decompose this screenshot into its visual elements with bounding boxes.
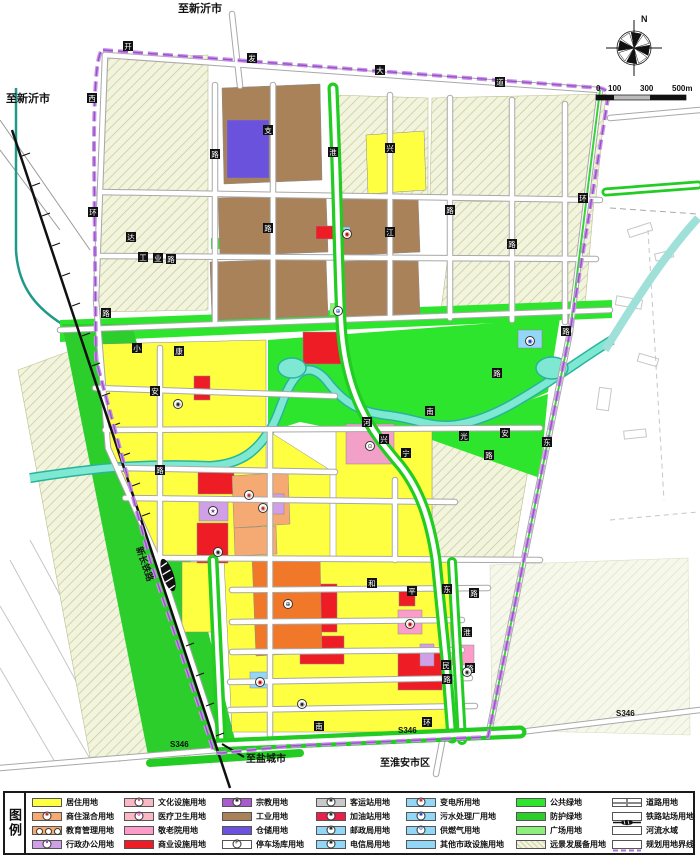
map-label: 至淮安市区: [380, 756, 430, 769]
legend-swatch-fill-symbol: ⊕: [124, 812, 154, 821]
legend-label: 铁路站场用地: [646, 811, 694, 822]
road-name-char: 路: [485, 450, 493, 460]
legend-entry: 敬老院用地: [124, 823, 222, 837]
facility-symbol-glyph: ◉: [299, 702, 304, 708]
legend-symbol: ◉: [233, 798, 242, 807]
road-name-char: 安: [501, 428, 509, 438]
scale-label: 100: [608, 84, 622, 93]
legend-label: 污水处理厂用地: [440, 811, 496, 822]
legend-symbol: ◉: [43, 812, 52, 821]
legend-label: 远景发展备用地: [550, 839, 606, 850]
legend-entry: 居住用地: [32, 795, 124, 809]
river-icon: [613, 833, 641, 835]
road-name-char: 路: [446, 205, 454, 215]
legend-symbol: ★: [43, 840, 52, 849]
road-name-char: 东: [443, 584, 451, 594]
legend-column: 道路用地铁路站场用地河流水域规划用地界线: [612, 795, 696, 851]
road-name-char: 达: [127, 232, 135, 242]
legend-symbol: ◉: [327, 826, 336, 835]
legend-panel: 图例 居住用地◉商住混合用地教育管理用地★行政办公用地★文化设施用地⊕医疗卫生用…: [3, 791, 695, 855]
legend-symbol: ◉: [417, 812, 426, 821]
dash-line-icon: [613, 847, 641, 854]
legend-swatch-fill-symbol: ◉: [316, 840, 346, 849]
legend-entry: ◉宗教用地: [222, 795, 316, 809]
road-name-char: 环: [89, 208, 97, 217]
legend-swatch-fill-symbol: P: [222, 840, 252, 849]
facility-symbol-glyph: ◉: [175, 402, 180, 408]
compass-north-label: N: [641, 14, 648, 24]
facility-symbol-glyph: ◉: [527, 339, 532, 345]
legend-swatch-fill-symbol: ⊙: [406, 826, 436, 835]
road-name-char: 路: [167, 254, 175, 264]
legend-swatch-fill-symbol: ◉: [406, 798, 436, 807]
legend-label: 变电所用地: [440, 797, 480, 808]
scale-label: 0: [596, 84, 601, 93]
legend-title: 图例: [5, 808, 24, 838]
legend-entry: 河流水域: [612, 823, 696, 837]
legend-entry: 其他市政设施用地: [406, 837, 516, 851]
legend-symbol: ◉: [417, 798, 426, 807]
legend-swatch-road-icon: [612, 798, 642, 807]
facility-symbol-glyph: ★: [210, 508, 215, 515]
legend-entry: ◉变电所用地: [406, 795, 516, 809]
legend-swatch-fill-symbol: ◉: [316, 826, 346, 835]
legend-swatch-fill: [124, 840, 154, 849]
legend-label: 防护绿地: [550, 811, 582, 822]
facility-symbol-glyph: ◉: [246, 493, 251, 499]
road-name-char: 工: [139, 253, 147, 262]
legend-label: 行政办公用地: [66, 839, 114, 850]
legend-entry: ★文化设施用地: [124, 795, 222, 809]
legend-swatch-fill-symbol: ◉: [406, 812, 436, 821]
map-label: S346: [398, 726, 417, 735]
road-name-char: 道: [496, 77, 504, 87]
legend-label: 加油站用地: [350, 811, 390, 822]
road-name-char: 宁: [402, 448, 410, 458]
road-name-char: 路: [156, 465, 164, 475]
road-name-char: 东: [543, 437, 551, 447]
rail-icon: [613, 819, 641, 826]
legend-entry: ◉污水处理厂用地: [406, 809, 516, 823]
road-name-char: 民: [442, 661, 450, 670]
facility-symbol-glyph: ⊕: [285, 602, 290, 608]
legend-grid: 居住用地◉商住混合用地教育管理用地★行政办公用地★文化设施用地⊕医疗卫生用地敬老…: [26, 793, 696, 853]
legend-entry: ◉加油站用地: [316, 809, 406, 823]
compass-rose: N: [606, 14, 662, 76]
legend-label: 道路用地: [646, 797, 678, 808]
legend-label: 其他市政设施用地: [440, 839, 504, 850]
road-name-char: 环: [423, 718, 431, 727]
legend-label: 河流水域: [646, 825, 678, 836]
legend-column: 公共绿地防护绿地广场用地远景发展备用地: [516, 795, 612, 851]
legend-column: ◉客运站用地◉加油站用地◉邮政局用地◉电信局用地: [316, 795, 406, 851]
road-name-char: 路: [264, 223, 272, 233]
legend-label: 广场用地: [550, 825, 582, 836]
road-name-char: 业: [154, 253, 162, 263]
facility-symbol-glyph: ◉: [260, 506, 265, 512]
road-name-char: 路: [443, 674, 451, 684]
road-icon-line: [626, 799, 628, 806]
legend-entry: ◉客运站用地: [316, 795, 406, 809]
facility-symbol-glyph: ⊕: [335, 309, 340, 315]
facility-symbol-glyph: ◉: [215, 550, 220, 556]
map-label: 至盐城市: [246, 752, 286, 765]
road-name-char: 支: [264, 125, 272, 135]
legend-column: ★文化设施用地⊕医疗卫生用地敬老院用地商业设施用地: [124, 795, 222, 851]
scale-bar: 0100300500m: [596, 84, 692, 100]
legend-swatch-fill-symbol: ◉: [316, 798, 346, 807]
legend-entry: ◉邮政局用地: [316, 823, 406, 837]
legend-entry: 公共绿地: [516, 795, 612, 809]
legend-swatch-fill-symbol: ★: [32, 840, 62, 849]
legend-swatch-fill: [516, 812, 546, 821]
legend-entry: 道路用地: [612, 795, 696, 809]
legend-swatch-fill-symbol: ★: [124, 798, 154, 807]
legend-label: 公共绿地: [550, 797, 582, 808]
legend-symbol: ◉: [327, 798, 336, 807]
planning-map: 开发大道西环路达工业路支路兴江路路路淮环路小康安路河兴光宁南安东路路和平东路民路…: [0, 0, 700, 790]
legend-entry: 规划用地界线: [612, 837, 696, 851]
legend-label: 商业设施用地: [158, 839, 206, 850]
legend-swatch-fill: [32, 798, 62, 807]
road-name-char: 路: [102, 308, 110, 318]
legend-swatch-fill: [124, 826, 154, 835]
road-name-char: 路: [470, 588, 478, 598]
legend-swatch-fill-symbol: ◉: [32, 812, 62, 821]
legend-entry: 广场用地: [516, 823, 612, 837]
map-label: S346: [170, 740, 189, 749]
map-label: 至新沂市: [6, 91, 50, 105]
road-name-char: 淮: [463, 627, 471, 637]
road-name-char: 河: [363, 418, 371, 427]
legend-entry: 工业用地: [222, 809, 316, 823]
road-name-char: 兴: [380, 435, 388, 444]
legend-swatch-fill: [516, 798, 546, 807]
map-label: S346: [616, 709, 635, 718]
legend-symbol: P: [233, 840, 242, 849]
road-name-char: 路: [562, 326, 570, 336]
legend-entry: ⊙供燃气用地: [406, 823, 516, 837]
road-name-char: 淮: [329, 147, 337, 157]
road-name-char: 兴: [386, 144, 394, 153]
legend-swatch-fill: [222, 812, 252, 821]
legend-label: 文化设施用地: [158, 797, 206, 808]
road-name-char: 和: [368, 579, 376, 588]
legend-symbol: ◉: [327, 840, 336, 849]
legend-label: 工业用地: [256, 811, 288, 822]
legend-entry: 商业设施用地: [124, 837, 222, 851]
legend-label: 仓储用地: [256, 825, 288, 836]
legend-symbol: [54, 828, 61, 835]
legend-label: 教育管理用地: [66, 825, 114, 836]
road-name-char: 路: [211, 149, 219, 159]
legend-swatch-river-icon: [612, 826, 642, 835]
legend-label: 居住用地: [66, 797, 98, 808]
legend-entry: 防护绿地: [516, 809, 612, 823]
legend-swatch-rail-icon: [612, 812, 642, 821]
legend-swatch-fill: [222, 826, 252, 835]
legend-label: 客运站用地: [350, 797, 390, 808]
legend-entry: 铁路站场用地: [612, 809, 696, 823]
road-name-char: 安: [151, 386, 159, 396]
legend-label: 供燃气用地: [440, 825, 480, 836]
legend-entry: ◉电信局用地: [316, 837, 406, 851]
facility-symbol-glyph: ◉: [407, 622, 412, 628]
road-name-char: 路: [493, 368, 501, 378]
legend-label: 宗教用地: [256, 797, 288, 808]
legend-label: 电信局用地: [350, 839, 390, 850]
legend-symbol: ◉: [327, 812, 336, 821]
legend-title-cell: 图例: [5, 793, 26, 853]
legend-swatch-symbols3: [32, 826, 62, 835]
legend-entry: 仓储用地: [222, 823, 316, 837]
scale-label: 300: [640, 84, 654, 93]
scale-label: 500m: [672, 84, 692, 93]
legend-label: 医疗卫生用地: [158, 811, 206, 822]
legend-entry: P停车场库用地: [222, 837, 316, 851]
legend-entry: 远景发展备用地: [516, 837, 612, 851]
legend-label: 停车场库用地: [256, 839, 304, 850]
legend-swatch-fill: [406, 840, 436, 849]
road-name-char: 平: [408, 587, 416, 596]
legend-swatch-fill-symbol: ◉: [316, 812, 346, 821]
road-name-char: 路: [508, 239, 516, 249]
facility-symbol-glyph: ◉: [344, 232, 349, 238]
legend-label: 邮政局用地: [350, 825, 390, 836]
legend-entry: ⊕医疗卫生用地: [124, 809, 222, 823]
map-label: 至新沂市: [178, 1, 222, 15]
legend-entry: ★行政办公用地: [32, 837, 124, 851]
facility-symbol-glyph: ◉: [464, 670, 469, 676]
road-name-char: 大: [376, 65, 384, 75]
legend-symbol: ★: [135, 798, 144, 807]
legend-label: 规划用地界线: [646, 839, 694, 850]
legend-swatch-fill: [516, 826, 546, 835]
legend-label: 敬老院用地: [158, 825, 198, 836]
facility-symbol-glyph: ◉: [257, 680, 262, 686]
road-name-char: 环: [579, 194, 587, 203]
road-name-char: 光: [460, 431, 468, 441]
road-name-char: 西: [88, 94, 96, 103]
legend-column: ◉宗教用地工业用地仓储用地P停车场库用地: [222, 795, 316, 851]
legend-entry: 教育管理用地: [32, 823, 124, 837]
road-name-char: 发: [248, 53, 256, 63]
legend-swatch-fill-symbol: ◉: [222, 798, 252, 807]
legend-symbol: [45, 828, 52, 835]
legend-column: 居住用地◉商住混合用地教育管理用地★行政办公用地: [32, 795, 124, 851]
legend-symbol: [36, 828, 43, 835]
road-name-char: 江: [386, 228, 394, 237]
legend-symbol: ⊙: [417, 826, 426, 835]
road-name-char: 小: [133, 344, 141, 353]
legend-swatch-hatch: [516, 840, 546, 849]
legend-entry: ◉商住混合用地: [32, 809, 124, 823]
road-name-char: 南: [426, 406, 434, 416]
facility-symbol-glyph: ⊙: [367, 444, 372, 450]
legend-label: 商住混合用地: [66, 811, 114, 822]
legend-column: ◉变电所用地◉污水处理厂用地⊙供燃气用地其他市政设施用地: [406, 795, 516, 851]
road-name-char: 开: [124, 42, 132, 51]
legend-swatch-dash-icon: [612, 840, 642, 849]
road-name-char: 南: [315, 721, 323, 731]
road-name-char: 康: [175, 346, 183, 356]
legend-symbol: ⊕: [135, 812, 144, 821]
